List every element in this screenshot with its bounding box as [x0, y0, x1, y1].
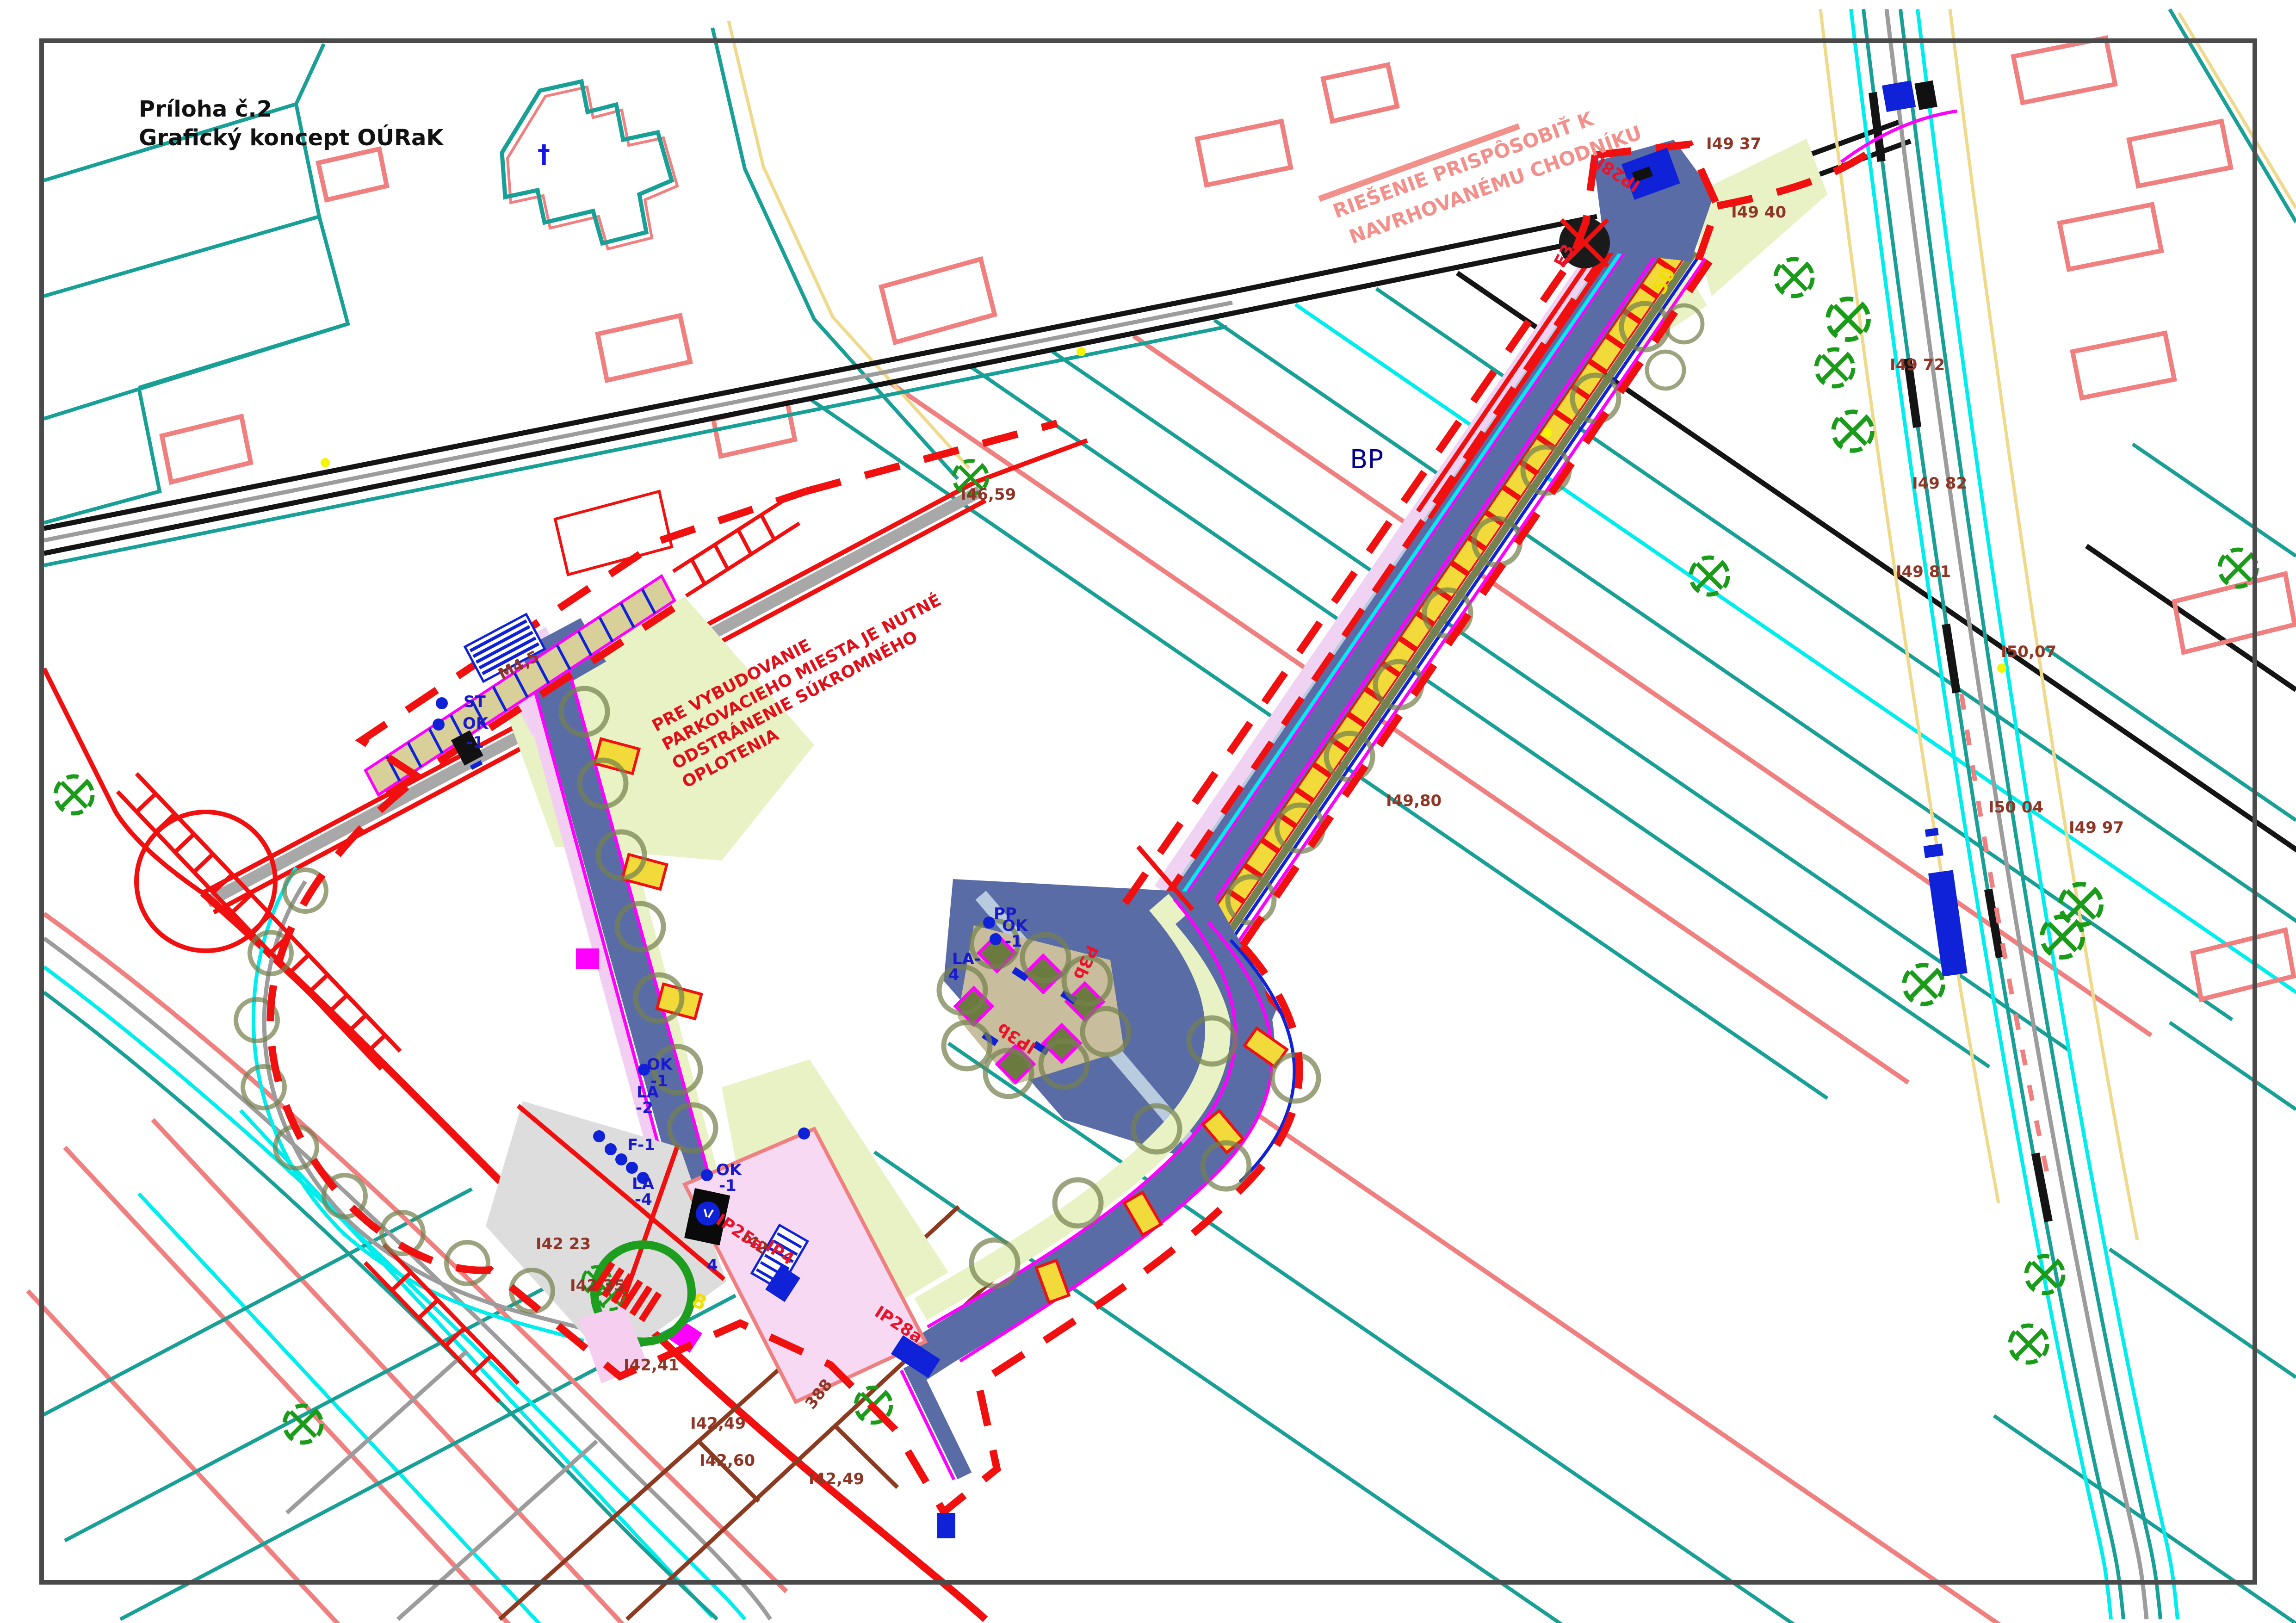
site-label: F-1	[627, 1136, 655, 1154]
site-label: 4	[948, 966, 959, 984]
title-line1: Príloha č.2	[139, 96, 272, 122]
cadastre-right-buildings	[2013, 38, 2295, 999]
church-building	[502, 81, 677, 249]
parcel-label: I49,80	[1386, 792, 1442, 810]
parcel-label: I46,59	[960, 485, 1016, 504]
parcel-label: I42,41	[624, 1356, 679, 1375]
parcel-label: I42,60	[699, 1451, 755, 1470]
red-parking-ladders	[118, 774, 518, 1401]
site-label: 4	[707, 1256, 718, 1275]
site-label: -2	[636, 1099, 653, 1117]
parcel-label: I50 04	[1988, 798, 2043, 817]
main-red-road	[44, 440, 1087, 1619]
site-label: ST	[464, 693, 486, 711]
site-label: -1	[1005, 932, 1022, 951]
parcel-label: I42 23	[536, 1235, 591, 1253]
church-cross-icon: †	[538, 140, 550, 169]
small-blue-sign	[937, 1513, 955, 1538]
parcel-label: I49 82	[1912, 474, 1967, 493]
site-label: OK	[647, 1055, 673, 1074]
urban-plan-map: Príloha č.2 Grafický koncept OÚRaK RIEŠE…	[0, 0, 2296, 1623]
site-label: -1	[466, 733, 484, 752]
parcel-label: I42,49	[690, 1414, 746, 1433]
parcel-label: I49 72	[1890, 356, 1945, 374]
site-label: -1	[719, 1177, 736, 1195]
site-label: -4	[635, 1190, 652, 1209]
parcel-label: I49 37	[1706, 135, 1761, 153]
zone-label-bp: BP	[1350, 445, 1383, 475]
title-line2: Grafický koncept OÚRaK	[139, 124, 444, 151]
parcel-label: I49 40	[1731, 203, 1786, 222]
parcel-label: I50,07	[2001, 643, 2056, 661]
parcel-label: I49 97	[2069, 818, 2124, 837]
parcel-label: I42,49	[809, 1470, 864, 1488]
site-label: OK	[463, 714, 489, 733]
right-road	[1820, 9, 2296, 1619]
parcel-label: I42 35	[570, 1276, 625, 1295]
parcel-label: I49 81	[1896, 563, 1951, 581]
